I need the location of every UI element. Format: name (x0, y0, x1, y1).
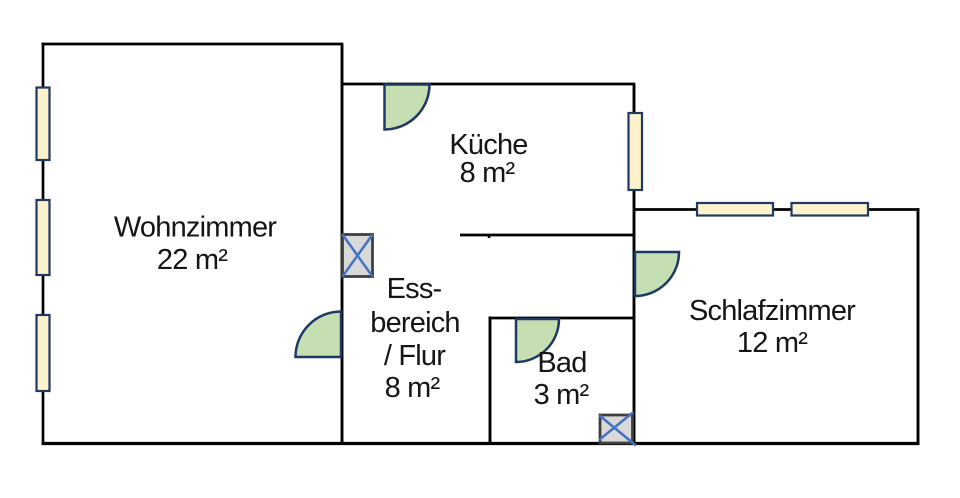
svg-text:12 m²: 12 m² (737, 327, 808, 359)
svg-text:Schlafzimmer: Schlafzimmer (689, 295, 856, 327)
svg-text:3 m²: 3 m² (534, 379, 590, 411)
svg-text:Bad: Bad (537, 347, 586, 379)
svg-text:8 m²: 8 m² (460, 157, 516, 189)
svg-text:22 m²: 22 m² (157, 244, 228, 276)
svg-text:8 m²: 8 m² (385, 372, 441, 404)
svg-text:Ess-: Ess- (387, 273, 442, 305)
svg-text:/ Flur: / Flur (384, 340, 446, 372)
svg-text:bereich: bereich (370, 307, 460, 339)
svg-text:Wohnzimmer: Wohnzimmer (114, 212, 277, 244)
